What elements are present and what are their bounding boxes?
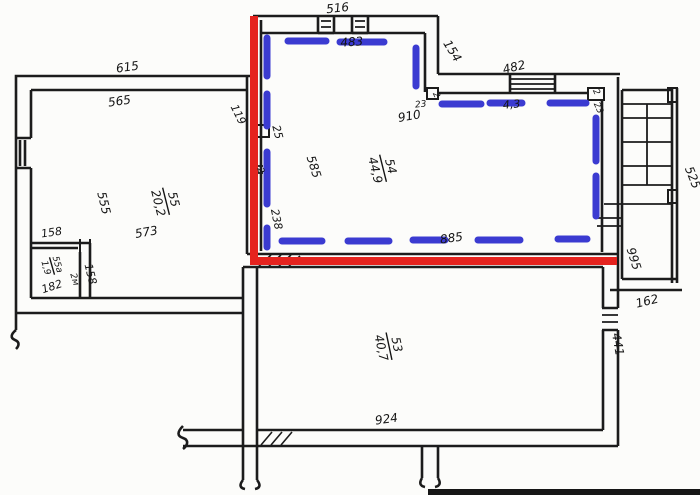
blue-dash-top [288, 41, 384, 42]
blue-dashed-outline [267, 38, 596, 247]
room-55a-height-note: 2м [67, 272, 80, 287]
wall-room55-bottom [16, 298, 243, 313]
wall-bottom [183, 430, 618, 446]
dim-516: 516 [325, 0, 350, 16]
dim-924: 924 [374, 411, 399, 428]
dim-4-3: 4,3 [502, 97, 521, 112]
dim-154: 154 [440, 37, 464, 64]
wall-stub-bottom [420, 447, 439, 487]
wall-break-room53-left [241, 480, 260, 489]
walls [12, 16, 623, 489]
wall-room53-left [243, 267, 257, 480]
dim-615: 615 [115, 59, 140, 76]
dim-23-left: 23 [415, 99, 428, 110]
dim-585: 585 [304, 154, 324, 180]
floor-plan: 516 615 565 119 154 483 482 4,3 910 23 2… [0, 0, 700, 495]
hatches [259, 255, 300, 445]
dim-555: 555 [94, 190, 113, 216]
dim-573: 573 [134, 223, 159, 241]
wall-break-left [12, 330, 19, 349]
hatch-bottom-wall [261, 432, 292, 445]
window-left-565 [15, 138, 31, 168]
dim-565: 565 [107, 93, 132, 110]
room-53-number: 53 [388, 336, 405, 354]
room-55a-area: 1,9 [38, 260, 52, 277]
window-441-mullions [602, 315, 618, 322]
window-516 [318, 16, 368, 33]
window-516-mullions [321, 21, 365, 27]
dim-119: 119 [228, 102, 249, 127]
dim-25: 25 [269, 124, 285, 141]
dim-158-side: 158 [82, 262, 100, 286]
dim-182: 182 [40, 277, 64, 296]
wall-top-jog [425, 16, 438, 92]
window-482-mullions [510, 79, 555, 89]
blue-dash-bottom [282, 239, 587, 241]
window-441-frame [602, 308, 618, 330]
dim-162: 162 [634, 292, 660, 311]
dim-525: 525 [682, 164, 700, 190]
floor-plan-canvas: 516 615 565 119 154 483 482 4,3 910 23 2… [0, 0, 700, 495]
scan-edge-artifact [428, 489, 700, 495]
dim-995: 995 [624, 246, 644, 272]
wall-room54-top [253, 16, 438, 33]
closet-door-jamb [80, 239, 90, 252]
dim-885: 885 [439, 230, 464, 247]
room-53-area: 40,7 [372, 333, 391, 362]
room-55a-label: 55а 1,9 [38, 255, 64, 278]
red-highlight-line [250, 16, 617, 261]
dim-441: 441 [609, 332, 627, 357]
staircase-steps [604, 104, 672, 204]
dim-158-top: 158 [40, 225, 63, 241]
room-54-label: 54 44,9 [365, 151, 401, 185]
dim-483: 483 [340, 34, 364, 50]
room-55-label: 55 20,2 [148, 184, 184, 218]
room-53-label: 53 40,7 [371, 329, 406, 363]
